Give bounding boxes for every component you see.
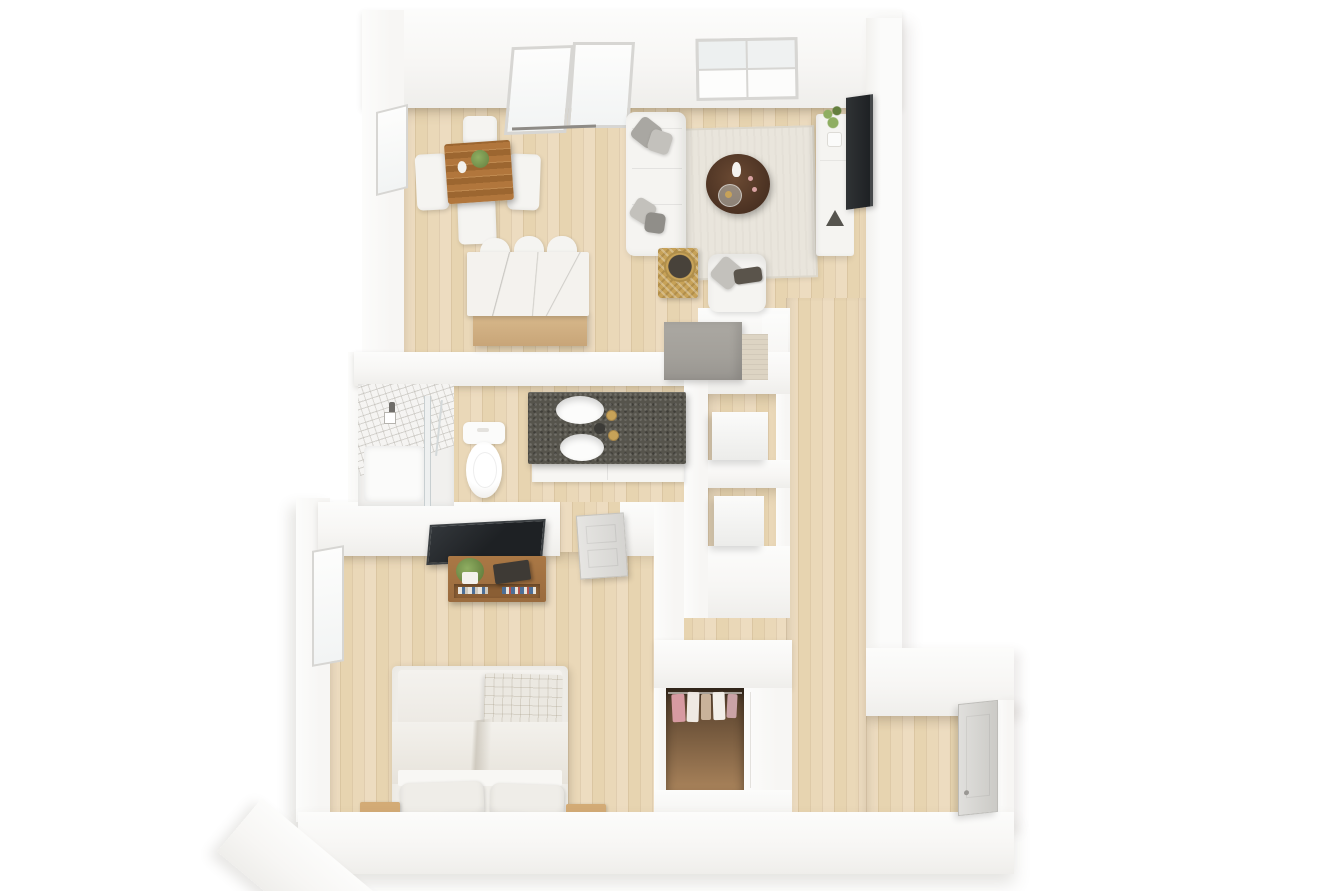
- floor-entry: [866, 714, 966, 826]
- wall-closet-header: [654, 640, 792, 688]
- wall-bottom: [298, 812, 1014, 874]
- flower-dot-2: [752, 187, 757, 192]
- tray-gold-item: [725, 191, 732, 198]
- entry-door: [958, 700, 998, 816]
- island-base: [473, 312, 587, 346]
- wall-entry-right: [996, 700, 1014, 830]
- wall-niche-bottom: [708, 546, 790, 618]
- vanity-sink-bottom: [560, 434, 604, 461]
- window-pane: [699, 70, 746, 98]
- hanging-clothes-white: [686, 692, 699, 722]
- console-books-stack: [493, 560, 531, 585]
- vanity-gold-jar-2: [608, 430, 619, 441]
- toilet-tank: [463, 422, 505, 444]
- closet-door-seam: [750, 692, 751, 788]
- bedroom-door: [576, 512, 628, 579]
- console-plant-pot: [827, 132, 842, 147]
- hanging-clothes-rose: [726, 694, 737, 718]
- shower-control: [384, 412, 396, 424]
- window-pane: [748, 69, 795, 97]
- walk-in-shower: [358, 384, 454, 506]
- closet-interior: [666, 688, 744, 790]
- round-coffee-table: [706, 154, 770, 214]
- sofa-seat-seam1: [632, 168, 682, 169]
- wall-closet-right: [744, 688, 792, 792]
- storage-niche-box-upper: [712, 412, 768, 460]
- console-decor-triangle: [826, 210, 844, 226]
- side-table-with-lamp: [658, 248, 698, 298]
- console-plant-pot-bedroom: [462, 572, 478, 584]
- sofa-pillow-4: [644, 212, 667, 235]
- table-vase: [457, 161, 467, 174]
- vanity-drawer-seam: [607, 464, 608, 480]
- dining-table: [444, 140, 514, 204]
- island-marble-top: [467, 252, 589, 316]
- runner-mat: [742, 334, 768, 380]
- floor-plan-render: [0, 0, 1336, 891]
- wood-media-console-bedroom: [448, 556, 546, 602]
- shower-glass-frame: [424, 396, 431, 506]
- toilet-button: [477, 428, 489, 432]
- sliding-door-pane-left: [504, 45, 574, 135]
- wall-bath-right: [684, 352, 708, 618]
- storage-niche-box-lower: [714, 496, 764, 546]
- window-top-right: [695, 37, 798, 101]
- sliding-door-pane-right: [567, 42, 635, 128]
- toilet-seat-ring: [473, 452, 497, 488]
- window-bedroom: [312, 545, 344, 667]
- shelf-books-right: [502, 587, 536, 594]
- hanging-clothes-tan: [701, 694, 711, 720]
- floor-hallway: [786, 298, 868, 828]
- console-lower-shelf: [454, 584, 540, 598]
- vanity-faucet: [594, 423, 605, 434]
- window-pane: [748, 40, 795, 68]
- toilet: [462, 420, 506, 500]
- window-pane: [699, 41, 746, 69]
- entry-door-panel: [966, 714, 990, 799]
- vanity-countertop: [528, 392, 686, 464]
- vanity: [528, 392, 686, 484]
- vanity-cabinet: [532, 462, 684, 482]
- coffee-table-vase: [732, 162, 741, 177]
- vanity-sink-top: [556, 396, 604, 424]
- vanity-gold-jar-1: [606, 410, 617, 421]
- centerpiece-plant: [470, 149, 489, 168]
- door-panel-line-2: [587, 548, 618, 568]
- flower-dot-1: [748, 176, 753, 181]
- door-panel-line-1: [586, 524, 617, 544]
- bed: [392, 666, 568, 822]
- wall-tv-living: [846, 94, 873, 210]
- shelf-books-left: [458, 587, 488, 594]
- hanging-clothes-pink: [671, 694, 685, 723]
- shower-pan: [364, 446, 424, 502]
- dining-chair-left: [415, 153, 450, 211]
- gray-appliance: [664, 322, 742, 380]
- wall-closet-left: [654, 688, 666, 790]
- table-lamp: [664, 251, 696, 282]
- hanging-clothes-white2: [713, 692, 726, 720]
- window-living-left: [376, 104, 408, 196]
- wall-niche-divider: [708, 460, 790, 488]
- sliding-glass-door: [504, 30, 638, 132]
